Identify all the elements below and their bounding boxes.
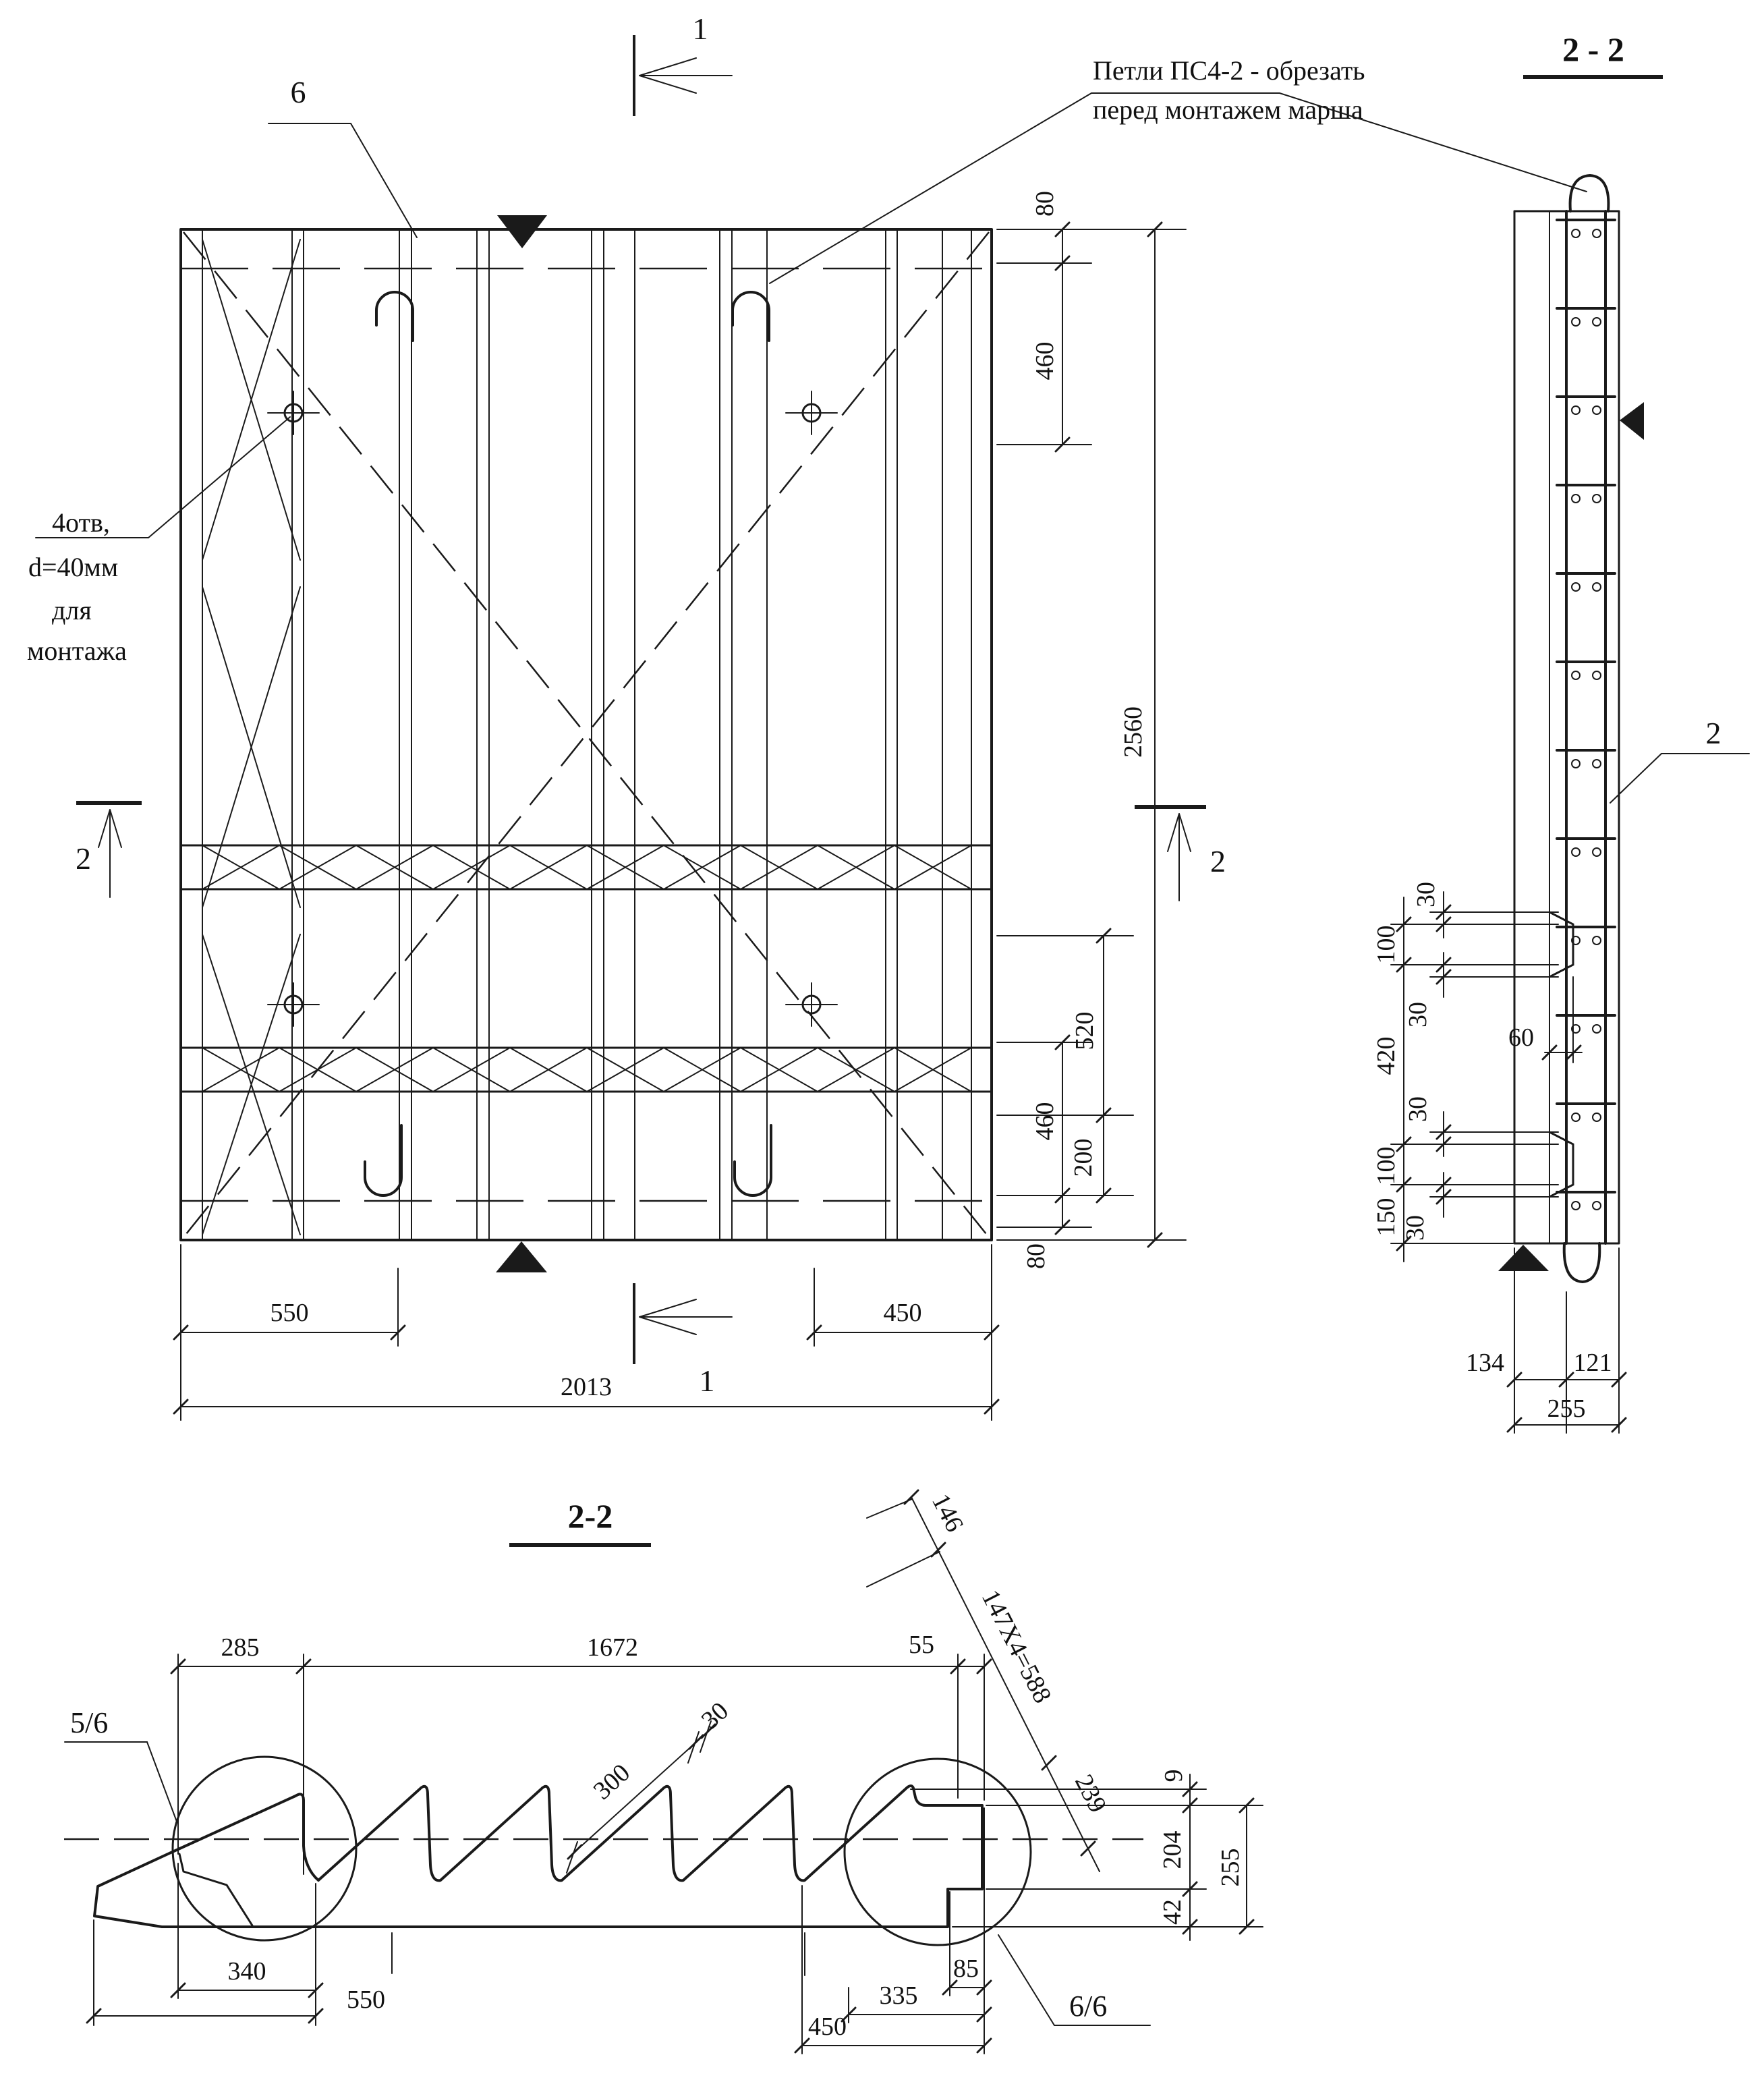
dim-mid-520: 520 bbox=[1071, 1012, 1099, 1050]
plan-side-inner-lines bbox=[202, 231, 971, 1239]
dim-side-420: 420 bbox=[1372, 1037, 1400, 1075]
stair-flight-drawing: 1 1 2 2 6 Петли ПС4-2 - обрезать перед м… bbox=[0, 0, 1764, 2082]
side-section-title: 2 - 2 bbox=[1562, 30, 1624, 68]
dim-nose-30: 30 bbox=[696, 1697, 734, 1735]
flight-profile bbox=[94, 1786, 982, 1927]
dim-b550: 550 bbox=[347, 1986, 385, 2014]
section-stub-lines bbox=[392, 1933, 805, 1975]
mesh-rails bbox=[1566, 211, 1605, 1243]
detail-circle-right bbox=[845, 1759, 1031, 1945]
dim-v42: 42 bbox=[1158, 1899, 1187, 1925]
rebar-callout-leader bbox=[268, 123, 417, 237]
holes-note-line3: для bbox=[52, 595, 92, 625]
section1-arrow-bottom-icon bbox=[639, 1299, 732, 1334]
plan-view bbox=[181, 215, 992, 1272]
section2-arrow-right-icon bbox=[1168, 814, 1191, 901]
dim-top-80: 80 bbox=[1031, 191, 1059, 217]
section1-label-top: 1 bbox=[693, 11, 708, 46]
mesh-callout-label: 2 bbox=[1706, 716, 1722, 750]
plan-diagonals bbox=[183, 232, 989, 1237]
plan-rib-lines bbox=[292, 231, 942, 1239]
mounting-holes bbox=[268, 391, 837, 1026]
mesh-callout-leader bbox=[1610, 754, 1749, 803]
dim-side-30d: 30 bbox=[1401, 1215, 1429, 1241]
long-section: 2-2 5/6 6/6 bbox=[64, 1497, 1150, 2025]
dim-v204: 204 bbox=[1158, 1831, 1187, 1869]
annotations: 6 Петли ПС4-2 - обрезать перед монтажем … bbox=[27, 55, 1587, 666]
dim-side-60: 60 bbox=[1508, 1023, 1534, 1052]
dim-340: 340 bbox=[228, 1957, 266, 1986]
plan-dim-lines bbox=[181, 229, 1155, 1407]
level-mark-side-icon bbox=[1620, 402, 1644, 440]
long-section-title: 2-2 bbox=[568, 1497, 613, 1535]
section2-label-left: 2 bbox=[76, 841, 91, 876]
section2-arrow-left-icon bbox=[98, 810, 121, 897]
loops-note-line2: перед монтажем марша bbox=[1093, 94, 1363, 125]
dim-side-255: 255 bbox=[1547, 1395, 1586, 1423]
section1-label-bottom: 1 bbox=[700, 1363, 715, 1398]
left-bearing-nib bbox=[179, 1854, 252, 1925]
rebar-callout-label: 6 bbox=[291, 75, 306, 109]
long-section-dimensions: 285 1672 55 300 30 146 147X4=588 239 9 2… bbox=[87, 1490, 1263, 2054]
holes-note-line4: монтажа bbox=[27, 636, 127, 666]
dim-side-30b: 30 bbox=[1404, 1002, 1432, 1028]
dim-side-150: 150 bbox=[1372, 1198, 1400, 1237]
drawing-sheet: 1 1 2 2 6 Петли ПС4-2 - обрезать перед м… bbox=[0, 0, 1764, 2082]
dim-side-121: 121 bbox=[1574, 1349, 1612, 1377]
section2-label-right: 2 bbox=[1210, 844, 1226, 878]
dim-2013: 2013 bbox=[561, 1373, 612, 1401]
lifting-loop-bottom-left bbox=[365, 1125, 401, 1195]
dim-side-100b: 100 bbox=[1372, 1147, 1400, 1185]
holes-note-line2: d=40мм bbox=[28, 552, 118, 582]
plan-rib-band-upper bbox=[181, 845, 992, 889]
plan-edge-bracing bbox=[202, 240, 300, 1235]
dim-side-30c: 30 bbox=[1404, 1096, 1432, 1122]
detail-right-label: 6/6 bbox=[1069, 1990, 1107, 2023]
dim-inc-239: 239 bbox=[1069, 1770, 1112, 1818]
dim-550: 550 bbox=[271, 1299, 309, 1327]
plan-dim-ticks bbox=[174, 223, 1162, 1413]
loop-top bbox=[1570, 175, 1609, 211]
section-marks: 1 1 2 2 bbox=[76, 11, 1226, 1398]
dim-height-2560: 2560 bbox=[1119, 706, 1147, 758]
dim-55: 55 bbox=[909, 1631, 934, 1659]
detail-left-leader bbox=[65, 1742, 177, 1822]
dim-tread-300: 300 bbox=[588, 1758, 635, 1805]
dim-mid-200: 200 bbox=[1069, 1139, 1098, 1177]
dim-85: 85 bbox=[953, 1954, 979, 1983]
dim-side-30a: 30 bbox=[1412, 882, 1440, 907]
dim-1672: 1672 bbox=[587, 1633, 638, 1662]
level-mark-top-icon bbox=[497, 215, 547, 248]
plan-extension-lines bbox=[181, 229, 1186, 1420]
dim-b450: 450 bbox=[808, 2013, 847, 2041]
plan-rib-band-lower bbox=[181, 1048, 992, 1092]
plan-outline bbox=[181, 229, 992, 1240]
dim-450: 450 bbox=[884, 1299, 922, 1327]
dim-side-134: 134 bbox=[1466, 1349, 1504, 1377]
dim-inc-147x4: 147X4=588 bbox=[976, 1585, 1057, 1708]
lifting-loop-top-left bbox=[376, 292, 413, 341]
dim-mid-460: 460 bbox=[1031, 1102, 1059, 1141]
dim-side-100a: 100 bbox=[1372, 926, 1400, 964]
mesh-holes bbox=[1572, 229, 1601, 1210]
side-dimensions: 100 420 100 150 30 30 30 30 60 134 121 2… bbox=[1372, 882, 1626, 1433]
level-mark-side-bottom-icon bbox=[1498, 1245, 1549, 1271]
dim-v255: 255 bbox=[1216, 1849, 1245, 1887]
level-mark-bottom-icon bbox=[496, 1241, 547, 1272]
joint-grooves bbox=[1549, 912, 1573, 1197]
side-view: 2 - 2 2 bbox=[1498, 30, 1749, 1282]
dim-335: 335 bbox=[880, 1981, 918, 2010]
detail-left-label: 5/6 bbox=[70, 1706, 108, 1739]
lifting-loop-top-right bbox=[733, 292, 769, 341]
lifting-loop-bottom-right bbox=[735, 1125, 771, 1195]
dim-inc-146: 146 bbox=[926, 1490, 969, 1537]
dim-top-460: 460 bbox=[1031, 342, 1059, 381]
holes-note-line1: 4отв, bbox=[52, 507, 110, 538]
detail-circle-left bbox=[173, 1757, 356, 1940]
section-dim-lines bbox=[94, 1497, 1247, 2046]
dim-285: 285 bbox=[221, 1633, 260, 1662]
dim-bot-80: 80 bbox=[1022, 1243, 1050, 1269]
dim-v9: 9 bbox=[1160, 1770, 1188, 1782]
plan-dimensions: 80 460 2560 460 520 200 80 550 450 2013 bbox=[174, 191, 1186, 1420]
section1-arrow-top-icon bbox=[639, 58, 732, 93]
loop-bottom bbox=[1564, 1243, 1600, 1282]
loops-note-line1: Петли ПС4-2 - обрезать bbox=[1093, 55, 1365, 86]
